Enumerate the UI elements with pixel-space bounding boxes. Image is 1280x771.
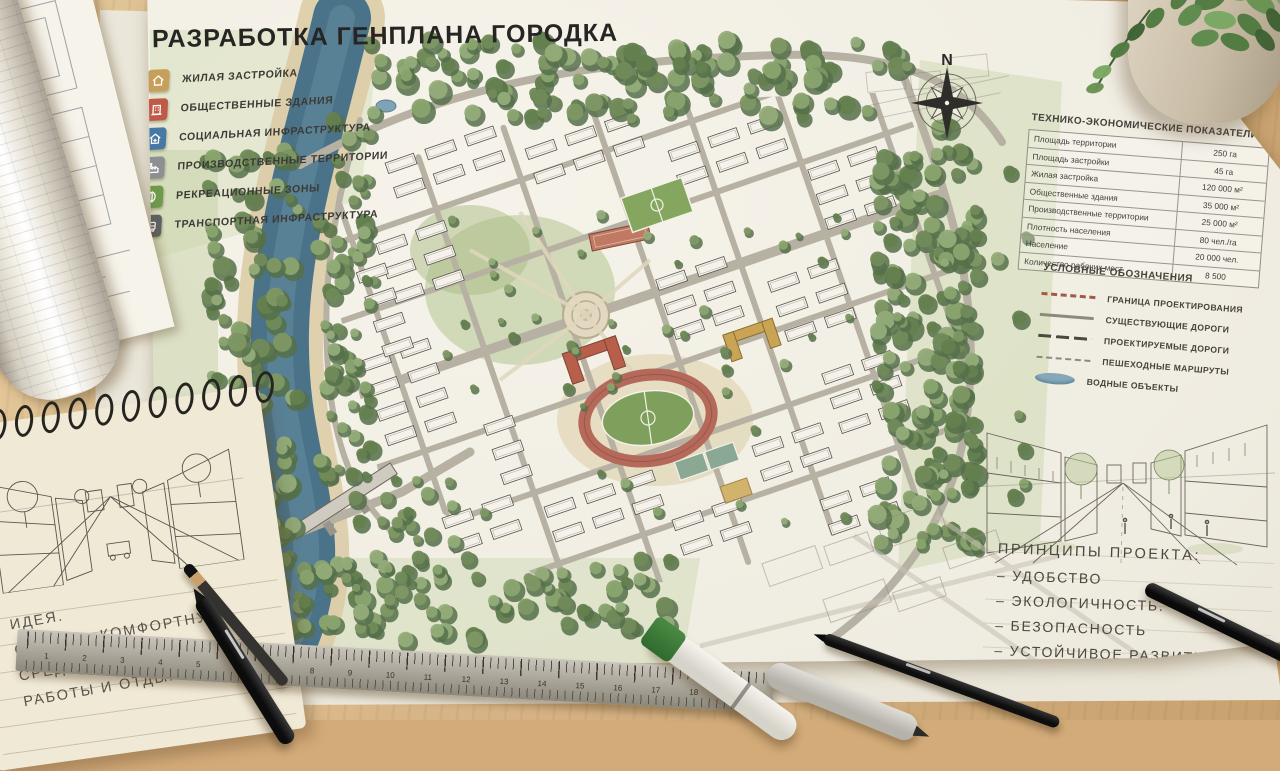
map-legend-panel: УСЛОВНЫЕ ОБОЗНАЧЕНИЯ ГРАНИЦА ПРОЕКТИРОВА… — [1034, 262, 1279, 406]
zone-legend: ЖИЛАЯ ЗАСТРОЙКА ОБЩЕСТВЕННЫЕ ЗДАНИЯ СОЦИ… — [139, 53, 394, 241]
water-object-swatch — [1035, 372, 1076, 386]
bridge — [290, 463, 406, 553]
ruler-number: 18 — [689, 687, 698, 696]
pedestrian-route-line — [1037, 355, 1091, 361]
ruler-number: 16 — [613, 683, 622, 692]
desk-scene: N — [0, 0, 1280, 720]
legend-label: СОЦИАЛЬНАЯ ИНФРАСТРУКТУРА — [179, 121, 371, 143]
faint-plan-sketch — [857, 52, 1012, 119]
social-infrastructure-icon — [144, 127, 167, 150]
page-title: РАЗРАБОТКА ГЕНПЛАНА ГОРОДКА — [152, 19, 618, 55]
ruler-number: 1 — [44, 651, 49, 660]
notebook: ИДЕЯ. СОЗДАТЬ КОМФОРТНУЮ СРЕДУ ДЛЯ ЖИЗНИ… — [0, 386, 306, 771]
ruler-number: 14 — [537, 679, 546, 688]
dashed-boundary-line — [1041, 292, 1095, 299]
legend-label: ПРОИЗВОДСТВЕННЫЕ ТЕРРИТОРИИ — [177, 149, 388, 172]
principles-note: ПРИНЦИПЫ ПРОЕКТА: – УДОБСТВО – ЭКОЛОГИЧН… — [994, 541, 1278, 673]
sand-court — [720, 478, 752, 503]
legend-label: ТРАНСПОРТНАЯ ИНФРАСТРУКТУРА — [174, 208, 378, 231]
residential-icon — [147, 68, 170, 91]
park-wash — [410, 205, 530, 295]
ruler-number: 8 — [310, 666, 315, 675]
ruler-number: 12 — [461, 675, 470, 684]
public-buildings — [562, 222, 781, 384]
ruler-number: 13 — [499, 677, 508, 686]
planned-road-line — [1038, 334, 1092, 342]
ruler-number: 10 — [386, 670, 395, 679]
ruler-number: 9 — [348, 668, 353, 677]
notebook-street-sketch — [0, 407, 258, 595]
legend-label: ЖИЛАЯ ЗАСТРОЙКА — [182, 67, 298, 85]
public-buildings-icon — [145, 97, 168, 120]
residential-blocks — [356, 112, 910, 555]
compass-north-label: N — [941, 52, 953, 69]
legend-label: РЕКРЕАЦИОННЫЕ ЗОНЫ — [176, 182, 320, 202]
industrial-icon — [142, 156, 165, 179]
ruler-number: 2 — [82, 654, 87, 663]
existing-road-line — [1040, 313, 1094, 320]
ruler-number: 3 — [120, 656, 125, 665]
legend-label: ОБЩЕСТВЕННЫЕ ЗДАНИЯ — [180, 94, 333, 114]
ruler-number: 11 — [423, 673, 432, 682]
stadium-ground-wash — [557, 354, 753, 486]
principles-title: ПРИНЦИПЫ ПРОЕКТА: — [998, 541, 1278, 567]
ruler-number: 4 — [158, 658, 163, 667]
sports-field — [621, 178, 693, 233]
ruler-number: 15 — [575, 681, 584, 690]
central-plaza — [470, 212, 650, 380]
ruler-number: 17 — [651, 685, 660, 694]
compass-rose: N — [911, 52, 983, 139]
park-wash — [425, 215, 615, 365]
stadium — [579, 367, 718, 470]
tennis-courts — [674, 442, 739, 480]
ruler-number: 5 — [196, 660, 201, 669]
